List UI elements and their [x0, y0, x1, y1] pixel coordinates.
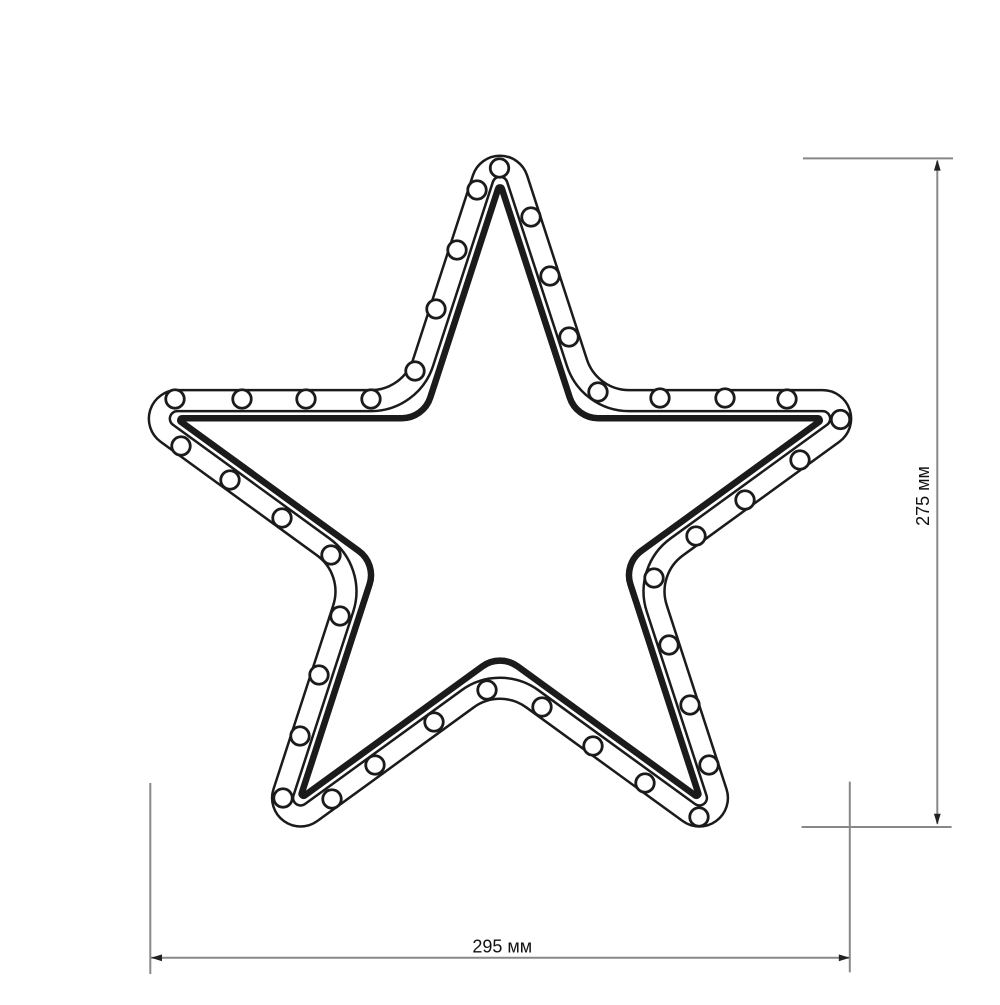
- svg-text:275 мм: 275 мм: [913, 466, 933, 526]
- svg-text:295 мм: 295 мм: [472, 937, 532, 957]
